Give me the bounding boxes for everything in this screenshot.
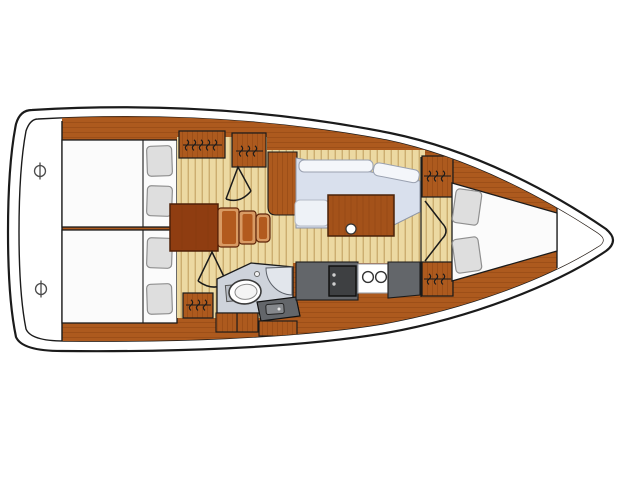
aft-cabin-port [62, 140, 177, 227]
backrest-cushion [299, 160, 373, 172]
step-2 [239, 211, 256, 244]
galley [296, 262, 420, 300]
galley-upper-cabinet [268, 152, 297, 215]
hanging-locker-forward-bottom [422, 262, 453, 296]
floor-forward-entry [418, 196, 454, 264]
berth-pillow-icon [146, 238, 172, 269]
companionway-base [170, 204, 218, 251]
hanging-locker-aft-2 [232, 133, 266, 167]
step-1 [218, 208, 239, 247]
double-sink-icon [363, 272, 374, 283]
salon-table [328, 195, 394, 236]
stove-knob [332, 282, 335, 285]
galley-counter-right [388, 262, 420, 298]
stove-knob [332, 273, 335, 276]
hanging-locker-forward-top [422, 156, 453, 197]
floor-plan-page [0, 0, 640, 480]
sailboat-floor-plan [0, 0, 640, 480]
head-drawer [259, 321, 297, 336]
berth-pillow-icon [452, 188, 482, 225]
head-bathroom [216, 263, 300, 336]
companionway-steps [170, 204, 270, 251]
berth-pillow-icon [146, 146, 172, 177]
aft-cabin-starboard [62, 230, 177, 323]
table-cup-holder [346, 224, 356, 234]
hanging-locker-head [183, 293, 213, 318]
berth-pillow-icon [146, 284, 172, 315]
hanging-locker-aft-1 [179, 131, 225, 158]
shower-drain [255, 272, 260, 277]
vanity-sink [257, 297, 300, 321]
stove-icon [329, 266, 356, 296]
berth-pillow-icon [452, 236, 482, 273]
corner-seat-cushion [295, 200, 329, 226]
berth-pillow-icon [146, 186, 172, 217]
double-sink-icon [376, 272, 387, 283]
step-3 [256, 214, 270, 242]
